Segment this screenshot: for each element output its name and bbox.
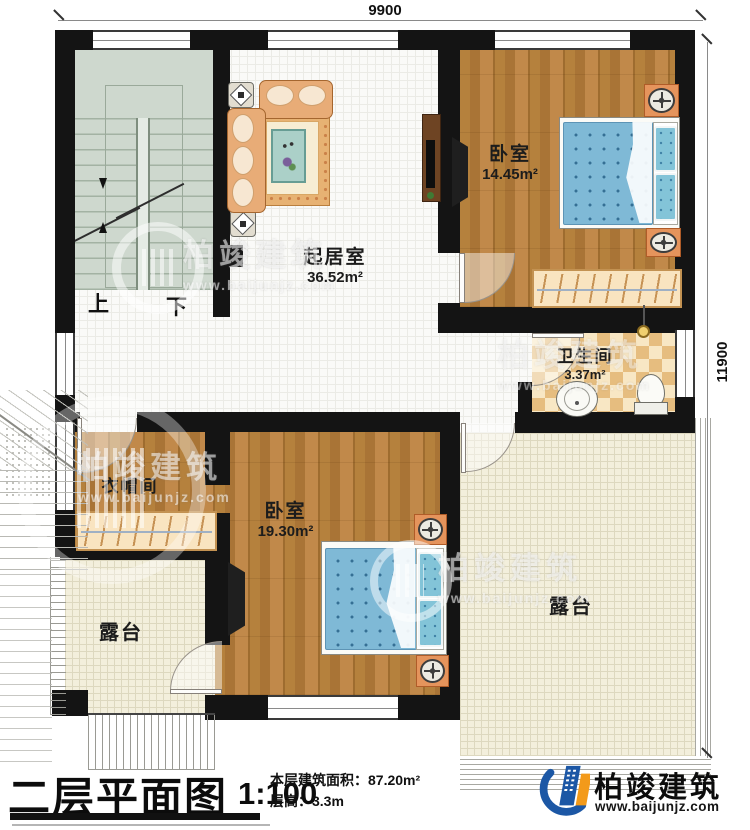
dimension-tick-top-right — [695, 9, 706, 20]
sofa-two-seat — [259, 80, 333, 119]
dimension-top-label: 9900 — [330, 2, 440, 19]
title-underline-thick — [10, 813, 260, 820]
terrace-left-door-leaf — [170, 689, 222, 694]
tv-bedroom2 — [228, 562, 245, 636]
bed-bedroom1 — [559, 117, 680, 229]
side-table-lamp-top — [228, 82, 254, 108]
dimension-tick-top-left — [53, 9, 64, 20]
floor-plan: 9900 11900 上 下 起居室 36.52m² 卧室 14.45m² 卫生… — [0, 0, 750, 830]
wall-bathroom-south — [518, 412, 695, 433]
watermark-2: 柏竣建筑 www.baijunjz.com — [498, 330, 651, 393]
window-top-living — [268, 30, 398, 50]
closet-bedroom1 — [532, 269, 682, 308]
dimension-line-top — [58, 20, 703, 21]
window-top-bedroom1 — [495, 30, 630, 50]
floor-height-label: 层高：3.3m — [270, 791, 420, 812]
computer-monitor — [426, 140, 435, 188]
stair-up-label: 上 — [88, 288, 109, 318]
watermark-1: 柏竣建筑 www.baijunjz.com — [183, 230, 336, 293]
nightstand-bedroom1-bottom — [646, 228, 681, 257]
terrace-left-label: 露台 — [83, 616, 159, 645]
window-bedroom2-south — [268, 695, 398, 720]
stair-arrow-down — [99, 178, 107, 189]
dimension-right-label: 11900 — [714, 324, 731, 400]
watermark-ring-icon-3 — [370, 540, 452, 622]
window-left-living — [55, 333, 75, 395]
terrace-left-west-railing — [50, 557, 66, 715]
title-underline-thin — [12, 824, 270, 826]
exterior-stair-steps-lower — [0, 570, 52, 762]
dimension-line-right — [707, 42, 708, 758]
brand-logo-icon — [538, 762, 590, 818]
terrace-right-east-railing — [695, 418, 711, 790]
brand-website: www.baijunjz.com — [595, 799, 720, 814]
desk-plant — [427, 192, 434, 199]
coffee-table — [271, 129, 306, 183]
terrace-left-south-railing — [88, 713, 215, 770]
window-top-stairwell — [93, 30, 190, 50]
nightstand-bedroom2-bottom — [416, 655, 449, 687]
nightstand-bedroom1-top — [644, 84, 679, 117]
bedroom2-label: 卧室 19.30m² — [238, 496, 333, 540]
wall-hall-south-c — [215, 412, 460, 432]
stair-arrow-up — [99, 222, 107, 233]
bathroom-lamp-cord — [643, 305, 645, 327]
watermark-4: 柏竣建筑 www.baijunjz.com — [438, 543, 591, 606]
wall-left-upper — [55, 30, 75, 333]
building-swoosh-icon — [538, 762, 590, 818]
toilet-tank — [634, 402, 668, 415]
floor-area-info: 本层建筑面积：87.20m² 层高：3.3m — [270, 770, 420, 812]
floor-area-label: 本层建筑面积：87.20m² — [270, 770, 420, 791]
watermark-ring-icon-1 — [112, 222, 204, 314]
window-bathroom-east — [675, 330, 695, 397]
bedroom1-label: 卧室 14.45m² — [455, 139, 565, 183]
watermark-ring-icon-2 — [18, 396, 206, 584]
sofa-three-seat — [227, 108, 266, 213]
